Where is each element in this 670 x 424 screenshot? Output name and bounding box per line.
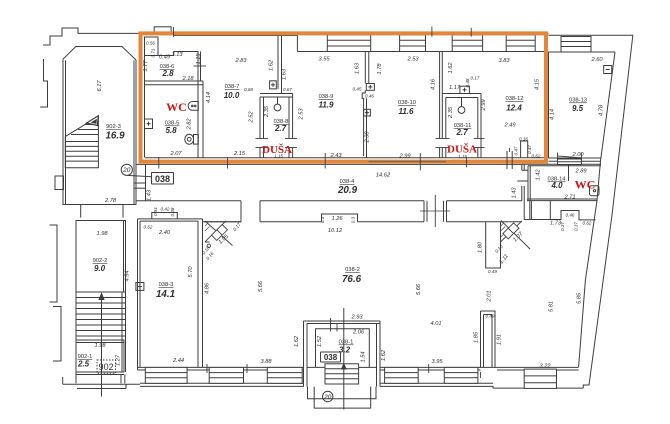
svg-text:0.67: 0.67 [283, 87, 292, 92]
svg-text:4.86: 4.86 [205, 282, 211, 294]
svg-text:14.1: 14.1 [156, 289, 175, 300]
svg-text:12.4: 12.4 [506, 104, 522, 113]
svg-text:5.8: 5.8 [165, 126, 177, 135]
svg-text:1.78: 1.78 [377, 63, 383, 75]
svg-text:2.83: 2.83 [234, 58, 247, 64]
svg-text:4.78: 4.78 [599, 104, 605, 116]
svg-text:2.7: 2.7 [455, 128, 468, 137]
svg-text:2.40: 2.40 [158, 230, 171, 236]
svg-text:11.9: 11.9 [319, 101, 335, 110]
svg-text:2.82: 2.82 [187, 118, 193, 131]
svg-text:2.38: 2.38 [365, 131, 371, 144]
svg-text:0.3: 0.3 [320, 216, 325, 223]
svg-text:1.77: 1.77 [143, 60, 149, 72]
svg-text:3.83: 3.83 [498, 58, 510, 64]
svg-text:1.43: 1.43 [512, 187, 518, 199]
svg-text:1.91: 1.91 [497, 334, 503, 345]
svg-text:0.62: 0.62 [532, 154, 541, 159]
svg-text:1.27: 1.27 [116, 354, 122, 366]
svg-text:2.60: 2.60 [590, 57, 603, 63]
svg-text:0.16: 0.16 [519, 137, 528, 142]
svg-text:2.71: 2.71 [563, 195, 575, 201]
svg-text:2.5: 2.5 [77, 360, 90, 369]
svg-text:0.46: 0.46 [566, 213, 575, 218]
svg-text:1.80: 1.80 [478, 241, 484, 253]
svg-text:2.15: 2.15 [233, 151, 246, 157]
svg-text:0.51: 0.51 [153, 207, 158, 216]
svg-text:038-9: 038-9 [319, 94, 334, 100]
svg-text:0.3: 0.3 [351, 216, 356, 223]
svg-text:1.15: 1.15 [274, 154, 283, 159]
svg-text:038-10: 038-10 [398, 100, 416, 106]
svg-text:0.42: 0.42 [161, 207, 170, 212]
svg-text:10.0: 10.0 [224, 91, 240, 100]
svg-text:5.85: 5.85 [577, 292, 583, 304]
svg-text:1.62: 1.62 [381, 349, 387, 361]
svg-text:2.44: 2.44 [172, 358, 184, 364]
svg-text:0.62: 0.62 [144, 225, 153, 230]
svg-text:038-2: 038-2 [345, 267, 360, 273]
svg-text:2.43: 2.43 [329, 153, 342, 159]
svg-text:1.98: 1.98 [94, 343, 106, 349]
svg-text:2.35: 2.35 [264, 105, 270, 118]
svg-text:1.17: 1.17 [449, 85, 461, 91]
svg-text:4.16: 4.16 [431, 78, 437, 90]
svg-text:10.12: 10.12 [328, 228, 343, 234]
svg-text:038: 038 [155, 174, 170, 184]
svg-text:0.38: 0.38 [170, 207, 175, 216]
svg-text:4.01: 4.01 [430, 321, 441, 327]
svg-text:1.62: 1.62 [269, 59, 275, 71]
svg-text:16.9: 16.9 [105, 131, 125, 142]
svg-text:6.17: 6.17 [97, 80, 103, 92]
svg-text:2.49: 2.49 [503, 123, 516, 129]
svg-text:1.63: 1.63 [282, 68, 288, 80]
svg-text:2.01: 2.01 [487, 290, 493, 302]
svg-text:0.37: 0.37 [574, 222, 579, 231]
svg-text:0.37: 0.37 [560, 222, 565, 231]
svg-text:038-3: 038-3 [159, 282, 174, 288]
svg-text:1.43: 1.43 [147, 189, 153, 201]
svg-text:WC: WC [166, 100, 187, 114]
svg-text:4.54: 4.54 [125, 270, 131, 281]
svg-text:1.52: 1.52 [317, 335, 323, 347]
svg-text:76.6: 76.6 [342, 274, 362, 285]
svg-text:3.2: 3.2 [339, 346, 351, 355]
svg-text:1.85: 1.85 [474, 331, 480, 343]
svg-text:0.49: 0.49 [486, 314, 495, 319]
svg-text:2.06: 2.06 [352, 330, 365, 336]
svg-text:902-3: 902-3 [106, 124, 121, 130]
svg-text:5.70: 5.70 [188, 266, 194, 278]
svg-text:038-7: 038-7 [225, 84, 240, 90]
svg-text:2.99: 2.99 [398, 154, 411, 160]
svg-text:WC: WC [575, 178, 596, 192]
svg-text:2.53: 2.53 [299, 108, 305, 121]
svg-text:2.8: 2.8 [161, 69, 174, 78]
svg-text:2.07: 2.07 [169, 151, 182, 157]
svg-text:5.81: 5.81 [549, 301, 555, 312]
svg-text:2.52: 2.52 [249, 111, 255, 124]
svg-text:0.47: 0.47 [514, 146, 519, 155]
svg-text:2.18: 2.18 [181, 76, 194, 82]
svg-text:1.26: 1.26 [331, 216, 343, 222]
svg-text:0.62: 0.62 [583, 221, 592, 226]
svg-text:2.00: 2.00 [571, 152, 584, 158]
svg-text:2.93: 2.93 [350, 315, 363, 321]
svg-text:0.45: 0.45 [353, 87, 362, 92]
svg-text:0.71: 0.71 [151, 48, 156, 57]
svg-text:0.48: 0.48 [465, 78, 470, 87]
svg-text:9.0: 9.0 [94, 264, 106, 273]
svg-text:1.13: 1.13 [171, 52, 183, 58]
svg-text:0.68: 0.68 [244, 87, 253, 92]
svg-text:14.62: 14.62 [376, 173, 391, 179]
svg-text:038: 038 [324, 353, 338, 362]
svg-text:0.56: 0.56 [146, 41, 155, 46]
svg-text:3.55: 3.55 [318, 57, 330, 63]
svg-text:3.88: 3.88 [260, 359, 272, 365]
svg-text:1.62: 1.62 [294, 335, 300, 347]
svg-text:5.66: 5.66 [416, 283, 422, 295]
svg-text:0.49: 0.49 [488, 269, 497, 274]
svg-text:2.99: 2.99 [481, 99, 487, 112]
svg-text:2.7: 2.7 [274, 124, 287, 133]
svg-text:1.54: 1.54 [361, 351, 367, 362]
svg-text:1.15: 1.15 [458, 154, 467, 159]
svg-text:1.63: 1.63 [355, 62, 361, 74]
svg-text:1.98: 1.98 [96, 231, 108, 237]
svg-text:902: 902 [99, 362, 114, 372]
svg-text:9.5: 9.5 [572, 104, 584, 113]
svg-text:3.95: 3.95 [431, 359, 443, 365]
svg-text:20.9: 20.9 [337, 185, 358, 196]
svg-text:0.17: 0.17 [471, 76, 480, 81]
svg-text:4.14: 4.14 [206, 92, 212, 103]
svg-text:2.78: 2.78 [104, 198, 117, 204]
svg-text:2.53: 2.53 [406, 57, 419, 63]
svg-text:0.49: 0.49 [159, 55, 171, 61]
svg-text:1.42: 1.42 [536, 169, 542, 181]
svg-text:5.66: 5.66 [258, 280, 264, 292]
svg-text:11.6: 11.6 [399, 107, 415, 116]
svg-text:038-12: 038-12 [505, 96, 523, 102]
svg-text:20: 20 [323, 394, 332, 401]
svg-text:4.0: 4.0 [550, 181, 563, 190]
svg-text:0.46: 0.46 [365, 94, 374, 99]
svg-text:1.62: 1.62 [448, 62, 454, 74]
svg-text:1.19: 1.19 [196, 53, 202, 65]
svg-text:3.22: 3.22 [539, 364, 551, 370]
svg-text:2.89: 2.89 [574, 169, 587, 175]
svg-text:2.35: 2.35 [448, 106, 454, 119]
svg-text:038-13: 038-13 [569, 98, 587, 104]
svg-text:4.15: 4.15 [535, 78, 541, 90]
svg-text:20: 20 [122, 167, 131, 174]
svg-text:4.14: 4.14 [550, 109, 556, 120]
